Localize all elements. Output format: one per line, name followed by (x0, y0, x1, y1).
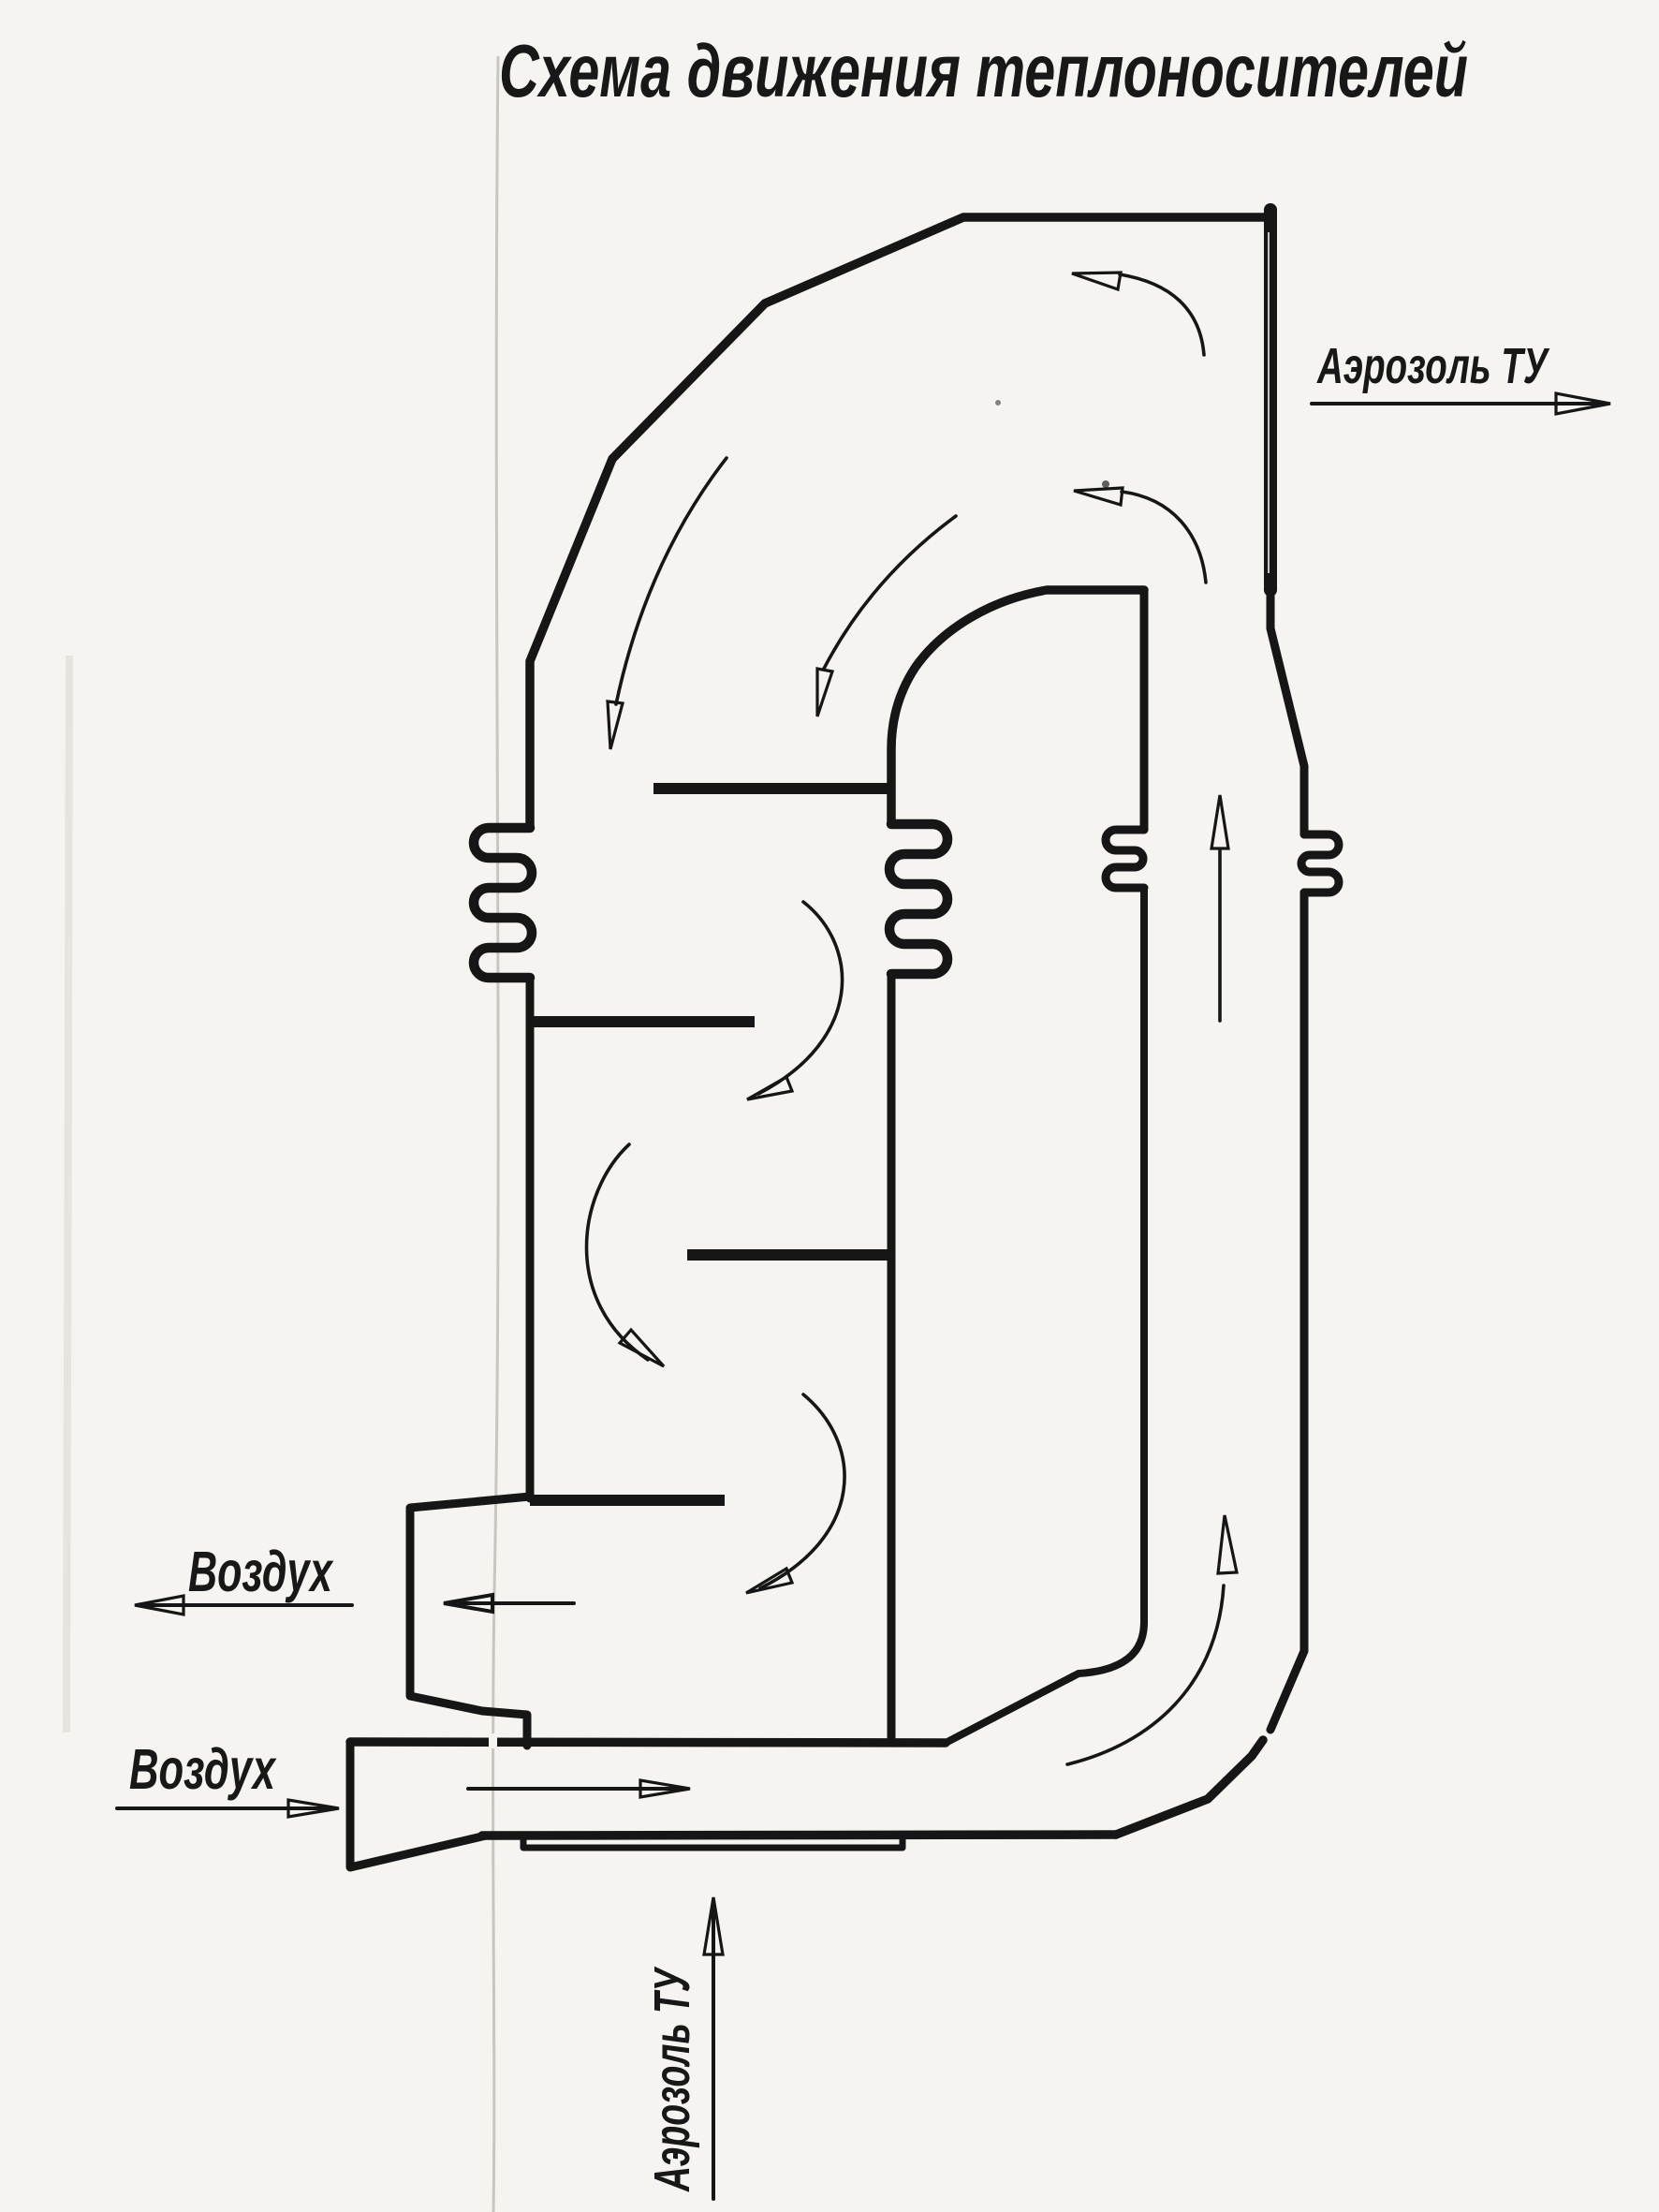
svg-text:Схема движения теплоносителей: Схема движения теплоносителей (499, 29, 1468, 112)
svg-text:Аэрозоль ТУ: Аэрозоль ТУ (1316, 338, 1550, 394)
svg-text:Воздух: Воздух (188, 1540, 333, 1603)
svg-text:Воздух: Воздух (129, 1737, 276, 1801)
svg-text:Аэрозоль ТУ: Аэрозоль ТУ (644, 1967, 700, 2193)
